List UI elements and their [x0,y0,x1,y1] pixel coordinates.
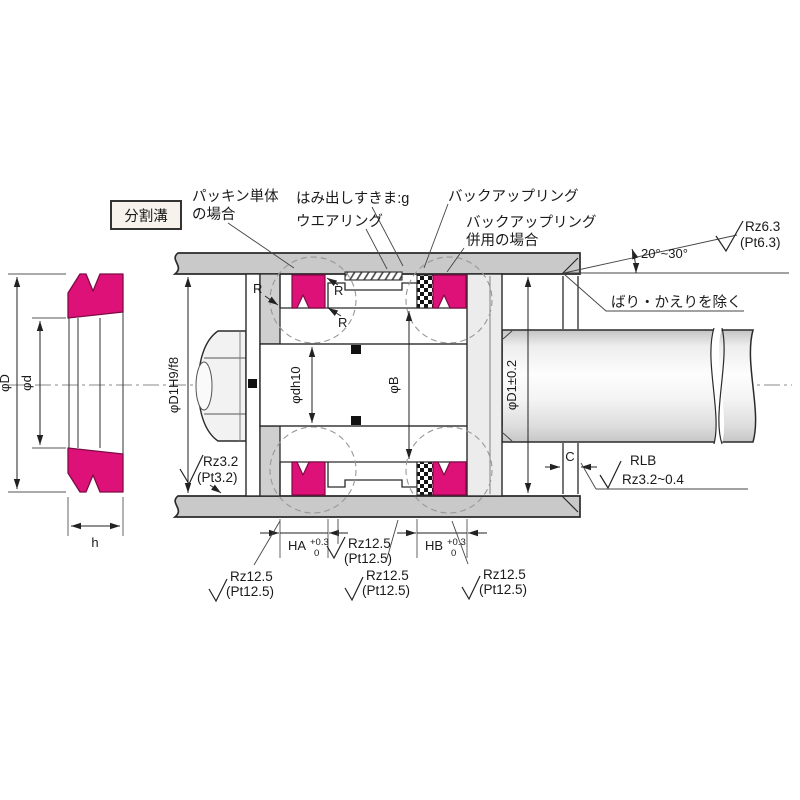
left-view-seal-section: φD φd h [0,274,123,550]
backup-ring2-callout-line1: バックアップリング [466,214,597,231]
seal-profile-lines [69,312,123,454]
wear-ring-callout: ウエアリング [296,213,383,230]
packing-callout-line2: の場合 [192,206,236,223]
dim-groove-dia-label: φdh10 [288,366,303,403]
dim-bore-tol-label: φD1±0.2 [504,360,519,410]
seal-bottom-left [292,462,325,495]
pin-mark-bottom [351,416,361,425]
finish-pt125: (Pt12.5) [479,582,527,597]
finish-pt32: (Pt3.2) [197,470,238,485]
seal-section-bottom [68,448,123,492]
finish-pt125: (Pt12.5) [226,584,274,599]
seal-section-top [68,274,123,318]
surface-finish-icon [327,537,345,558]
surface-finish-icon [600,461,621,488]
dim-ha-tol-upper: +0.3 [310,537,329,548]
deburr-note: ばり・かえりを除く [611,294,742,311]
finish-bottom-callouts: Rz12.5 (Pt12.5) Rz12.5 (Pt12.5) Rz12.5 (… [209,519,527,601]
piston-right-wall [467,274,502,496]
surface-finish-icon [462,576,480,599]
dim-hb-label: HB [425,538,443,553]
radius-label: R [334,283,343,298]
finish-rz125: Rz12.5 [230,569,273,584]
finish-pt125: (Pt12.5) [362,583,410,598]
backup-ring-top [417,275,433,308]
bolt-head-tip [196,362,212,410]
backup-ring2-callout-line2: 併用の場合 [466,232,539,249]
radius-leader [328,308,341,316]
finish-rz32: Rz3.2 [203,454,238,469]
finish-rz125: Rz12.5 [483,567,526,582]
bolt-center-mark [248,379,257,388]
groove-sidewall-top [260,274,280,344]
split-groove-label: 分割溝 [124,208,168,225]
surface-finish-icon [209,579,227,601]
seal-bottom-right [433,462,466,495]
angle-arc [632,249,636,273]
dim-bore-fit-label: φD1H9/f8 [166,357,181,413]
chamfer-notes: 20°~30° Rz6.3 (Pt6.3) ばり・かえりを除く [564,219,789,311]
dim-inner-dia-label: φd [19,375,34,391]
surface-finish-icon [345,577,363,600]
wear-ring [345,272,402,280]
finish-pt63: (Pt6.3) [740,235,781,250]
dim-outer-dia-label: φD [0,374,12,392]
seal-top-left [292,275,325,308]
radius-label: R [338,315,347,330]
pin-mark-top [351,345,361,354]
rlb-label: RLB [630,453,656,468]
dim-ha-label: HA [288,538,306,553]
finish-rz63: Rz6.3 [745,219,780,234]
finish-pt125: (Pt12.5) [344,551,392,566]
dim-hb-tol-lower: 0 [451,548,456,559]
dim-width-label: h [91,535,98,550]
extrusion-gap-callout: はみ出しすきま:g [296,190,409,207]
finish-left: Rz3.2 (Pt3.2) [180,454,238,493]
dim-hb-tol-upper: +0.3 [447,537,466,548]
finish-rz125: Rz12.5 [348,536,391,551]
cylinder-wall-bottom [175,496,580,517]
dim-ha-tol-lower: 0 [314,548,319,559]
finish-left-leader [210,485,221,493]
technical-drawing-canvas: φD φd h [0,0,800,800]
finish-rz125: Rz12.5 [366,568,409,583]
seal-housing-drawing: φD φd h [0,0,800,800]
dim-clearance-label: C [565,449,574,464]
surface-finish-icon [716,221,743,251]
backup-ring-bottom [417,462,433,495]
groove-sidewall-bottom [260,426,280,496]
rlb-roughness: Rz3.2~0.4 [622,472,684,487]
finish-leader [254,521,280,565]
radius-label: R [253,281,262,296]
packing-callout-line1: パッキン単体 [192,188,279,205]
backup-ring-callout: バックアップリング [448,188,579,205]
piston-rod [502,328,756,444]
seal-top-right [433,275,466,308]
cylinder-wall-top [175,253,580,274]
rlb-note: RLB Rz3.2~0.4 [581,453,748,489]
dim-land-dia-label: φB [386,376,401,393]
chamfer-angle-label: 20°~30° [641,246,688,261]
